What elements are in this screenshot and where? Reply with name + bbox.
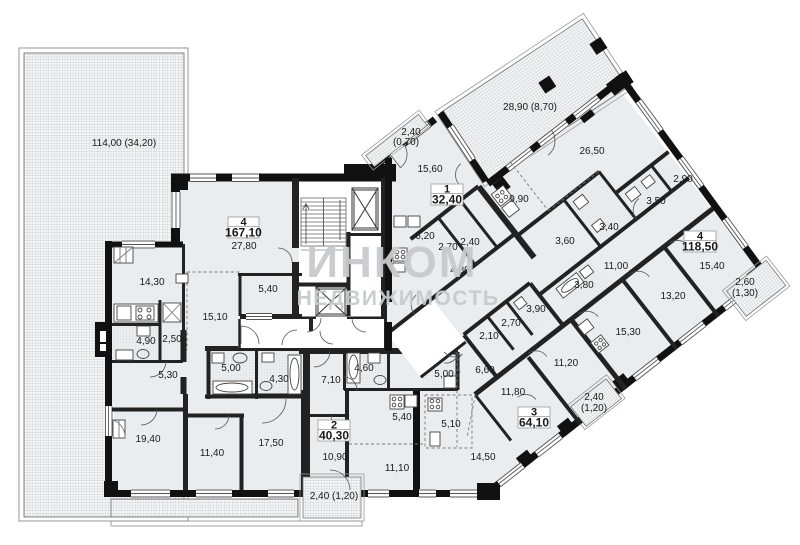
svg-text:(0,70): (0,70) bbox=[393, 137, 419, 148]
svg-text:13,20: 13,20 bbox=[660, 291, 685, 302]
svg-text:64,10: 64,10 bbox=[519, 416, 549, 430]
svg-text:3,60: 3,60 bbox=[555, 236, 575, 247]
svg-text:19,40: 19,40 bbox=[135, 434, 160, 445]
svg-text:15,30: 15,30 bbox=[615, 327, 640, 338]
svg-text:11,00: 11,00 bbox=[604, 261, 629, 272]
svg-text:2,70: 2,70 bbox=[501, 318, 521, 329]
svg-text:2,50: 2,50 bbox=[162, 334, 182, 345]
svg-text:26,50: 26,50 bbox=[579, 146, 604, 157]
svg-text:4,90: 4,90 bbox=[136, 336, 156, 347]
svg-text:5,30: 5,30 bbox=[158, 370, 178, 381]
svg-text:4,30: 4,30 bbox=[269, 374, 289, 385]
svg-text:НЕДВИЖИМОСТЬ: НЕДВИЖИМОСТЬ bbox=[297, 287, 500, 310]
svg-text:167,10: 167,10 bbox=[225, 226, 262, 240]
svg-text:17,50: 17,50 bbox=[258, 438, 283, 449]
svg-text:14,50: 14,50 bbox=[470, 452, 495, 463]
svg-text:5,40: 5,40 bbox=[258, 284, 278, 295]
svg-text:15,10: 15,10 bbox=[202, 312, 227, 323]
svg-text:28,90 (8,70): 28,90 (8,70) bbox=[503, 102, 557, 113]
svg-text:32,40: 32,40 bbox=[432, 193, 462, 207]
svg-text:3,50: 3,50 bbox=[646, 196, 666, 207]
svg-text:11,10: 11,10 bbox=[385, 463, 410, 474]
svg-text:15,40: 15,40 bbox=[699, 261, 724, 272]
svg-text:2,60: 2,60 bbox=[735, 277, 755, 288]
svg-text:11,80: 11,80 bbox=[501, 387, 526, 398]
svg-text:2,40 (1,20): 2,40 (1,20) bbox=[310, 491, 358, 502]
svg-text:40,30: 40,30 bbox=[319, 429, 349, 443]
svg-text:(1,30): (1,30) bbox=[732, 288, 758, 299]
svg-text:2,90: 2,90 bbox=[673, 174, 693, 185]
svg-text:6,60: 6,60 bbox=[475, 365, 495, 376]
svg-text:5,40: 5,40 bbox=[392, 412, 412, 423]
svg-text:(1,20): (1,20) bbox=[581, 403, 607, 414]
svg-text:10,90: 10,90 bbox=[322, 452, 347, 463]
svg-text:27,80: 27,80 bbox=[231, 241, 256, 252]
svg-text:5,00: 5,00 bbox=[434, 369, 454, 380]
svg-text:4,60: 4,60 bbox=[354, 363, 374, 374]
svg-text:3,90: 3,90 bbox=[526, 304, 546, 315]
svg-text:15,60: 15,60 bbox=[417, 164, 442, 175]
svg-text:3,40: 3,40 bbox=[599, 222, 619, 233]
svg-text:114,00 (34,20): 114,00 (34,20) bbox=[92, 138, 156, 149]
svg-text:11,20: 11,20 bbox=[554, 358, 579, 369]
svg-text:5,10: 5,10 bbox=[441, 419, 461, 430]
svg-text:3,80: 3,80 bbox=[574, 280, 594, 291]
svg-text:5,00: 5,00 bbox=[221, 363, 241, 374]
svg-text:7,10: 7,10 bbox=[321, 375, 341, 386]
svg-text:14,30: 14,30 bbox=[139, 277, 164, 288]
svg-text:2,10: 2,10 bbox=[479, 331, 499, 342]
svg-text:2,40: 2,40 bbox=[584, 392, 604, 403]
svg-text:118,50: 118,50 bbox=[682, 240, 718, 254]
svg-text:11,40: 11,40 bbox=[200, 448, 225, 459]
svg-text:9,90: 9,90 bbox=[509, 194, 529, 205]
svg-text:ИНКОМ: ИНКОМ bbox=[306, 238, 477, 287]
